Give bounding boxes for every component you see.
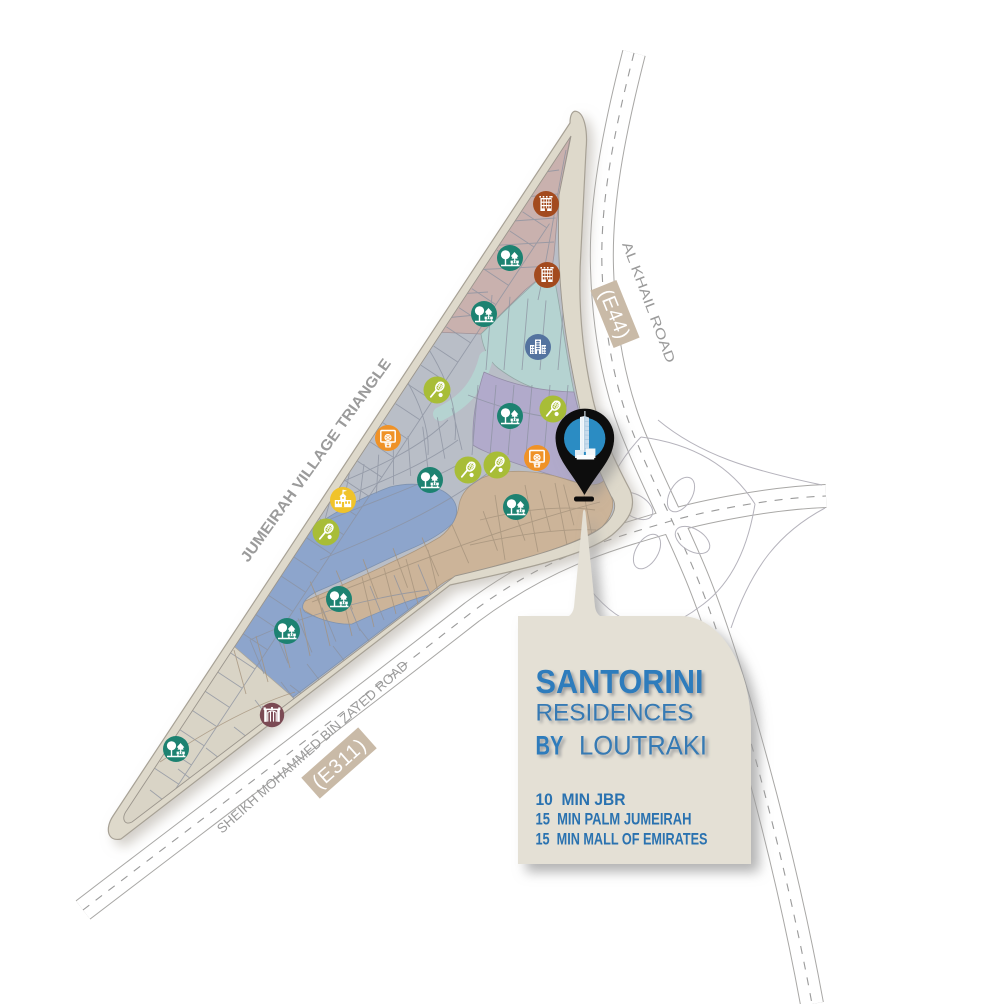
svg-text:15 MIN MALL OF EMIRATES: 15 MIN MALL OF EMIRATES [536,831,708,849]
svg-text:BY: BY [536,731,564,761]
svg-text:15 MIN PALM JUMEIRAH: 15 MIN PALM JUMEIRAH [536,811,692,829]
svg-text:LOUTRAKI: LOUTRAKI [579,731,707,761]
svg-text:SANTORINI: SANTORINI [536,663,704,700]
svg-text:RESIDENCES: RESIDENCES [536,700,694,727]
svg-text:10 MIN JBR: 10 MIN JBR [536,791,626,809]
